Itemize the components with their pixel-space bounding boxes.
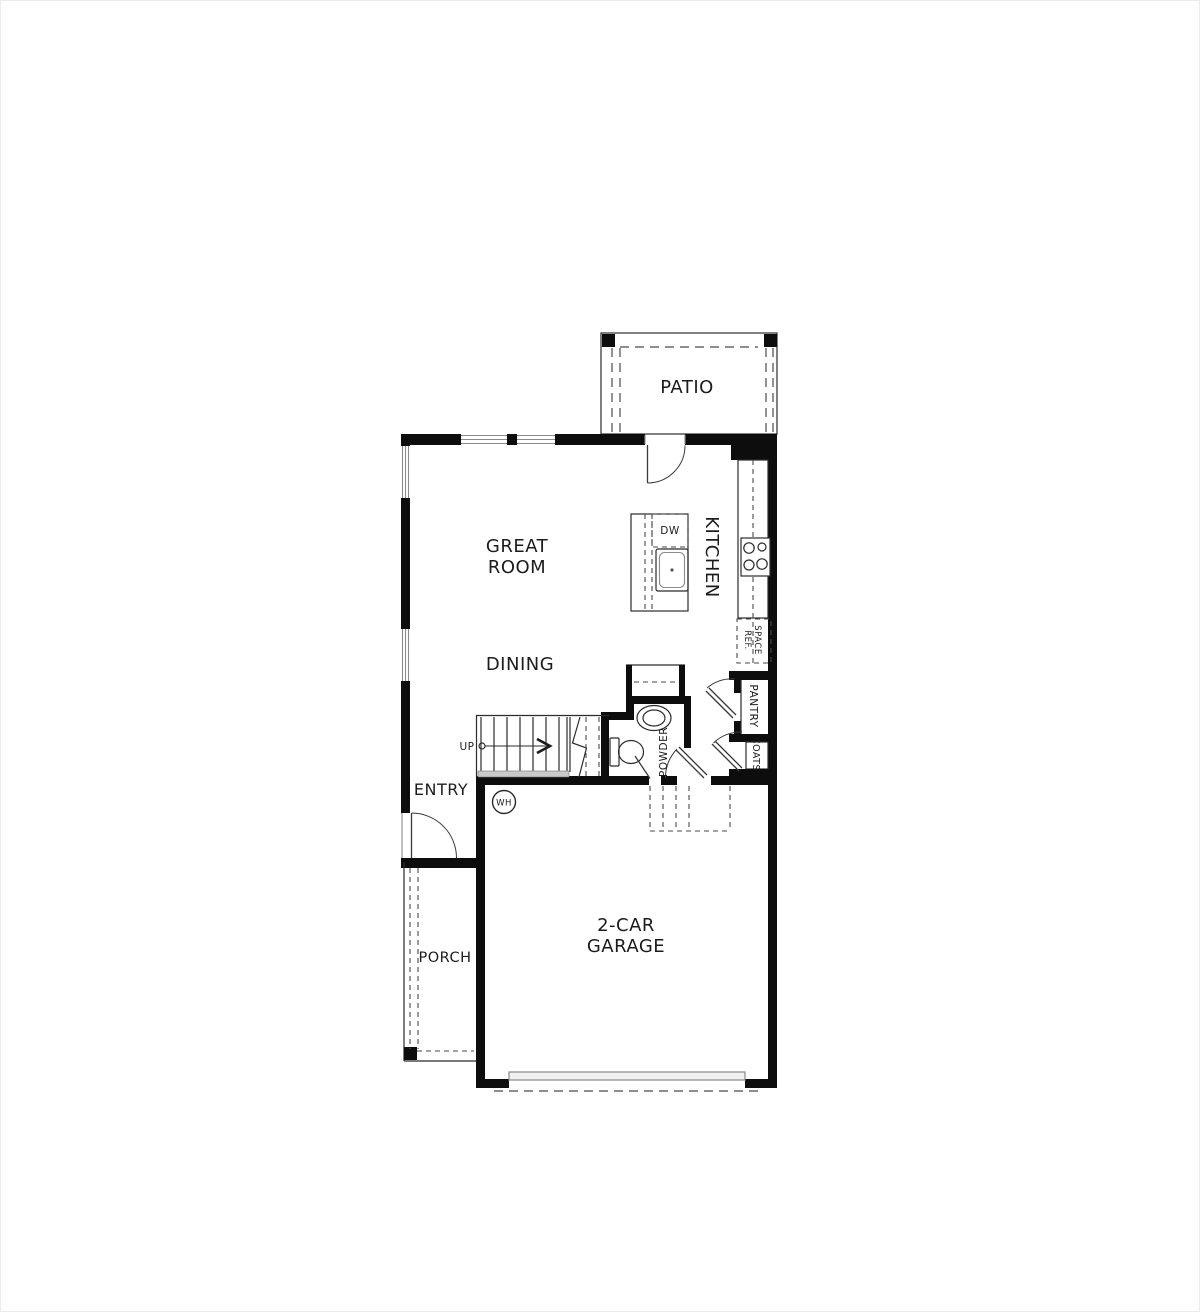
- stairs-up-arrow: UP: [459, 739, 550, 753]
- ref-space-label-line1: REF.: [742, 630, 752, 650]
- window: [461, 434, 507, 445]
- patio-post: [764, 334, 777, 347]
- ref-space-label-line2: SPACE: [752, 625, 762, 654]
- window: [517, 434, 555, 445]
- dishwasher-label: DW: [660, 525, 680, 537]
- garage-entry-door: [665, 747, 707, 778]
- water-heater: WH: [493, 791, 516, 814]
- porch-label: PORCH: [418, 950, 471, 966]
- patio-post: [602, 334, 615, 347]
- overhead-dashed-marks: [650, 786, 730, 831]
- powder-sink: [637, 706, 671, 731]
- stair-break-line: [573, 717, 587, 777]
- garage-door: [494, 1072, 758, 1091]
- powder-door: [635, 756, 650, 779]
- kitchen-label: KITCHEN: [701, 516, 722, 598]
- water-heater-label: WH: [496, 799, 512, 809]
- pantry-door: [706, 679, 736, 718]
- stair-base: [478, 771, 569, 777]
- pantry-label: PANTRY: [747, 684, 759, 727]
- dining-label: DINING: [486, 654, 554, 675]
- stove: [741, 538, 770, 576]
- window: [401, 446, 410, 498]
- garage-label-line2: GARAGE: [587, 936, 665, 957]
- patio-label: PATIO: [660, 377, 714, 398]
- kitchen-island: DW: [631, 514, 688, 611]
- powder-label: POWDER: [658, 727, 670, 777]
- patio-door: [645, 435, 685, 483]
- floor-plan-drawing: PATIO: [1, 1, 1199, 1311]
- garage-area: 2-CAR GARAGE: [494, 786, 758, 1091]
- garage-label-line1: 2-CAR: [597, 915, 655, 936]
- stair-landing-box: [626, 665, 685, 696]
- patio-area: PATIO: [601, 333, 777, 434]
- window: [401, 629, 410, 681]
- pantry: PANTRY: [706, 671, 777, 742]
- ref-space: REF. SPACE: [737, 619, 771, 663]
- stairs: UP: [459, 716, 609, 778]
- entry-label: ENTRY: [414, 780, 468, 799]
- entry-door: [402, 813, 457, 858]
- coats-label: COATS: [750, 737, 761, 771]
- up-label: UP: [459, 741, 474, 753]
- porch-area: PORCH: [404, 862, 476, 1061]
- great-room-label-line1: GREAT: [486, 536, 549, 557]
- great-room-label-line2: ROOM: [488, 557, 546, 578]
- powder-room: POWDER: [601, 665, 691, 784]
- kitchen-area: KITCHEN DW: [631, 460, 771, 663]
- floor-plan-page: PATIO: [0, 0, 1200, 1312]
